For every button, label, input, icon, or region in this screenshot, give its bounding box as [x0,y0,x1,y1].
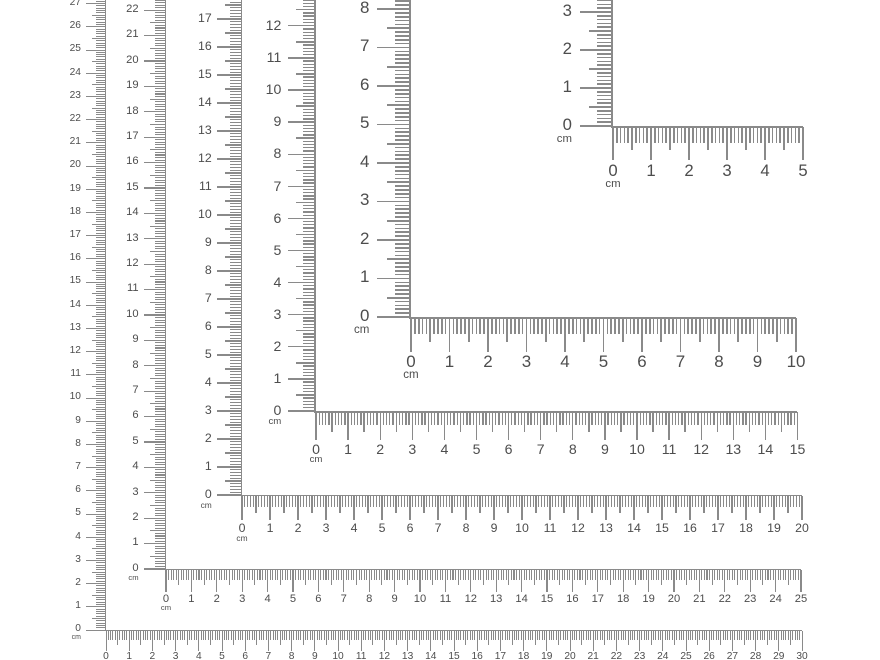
h-tick [662,127,664,143]
v-tick [597,83,613,85]
h-tick [688,127,690,160]
h-tick [620,127,622,143]
h-tick [696,127,698,143]
h-tick [658,127,660,143]
h-tick [612,127,614,160]
h-tick [779,127,781,143]
h-tick [703,127,705,143]
h-tick [624,127,626,143]
v-tick-label: 0 [522,117,572,134]
h-tick [726,127,728,160]
h-tick [692,127,694,143]
h-tick [635,127,637,143]
h-tick [760,127,762,143]
h-tick [627,127,629,143]
v-tick [597,26,613,28]
h-tick [700,127,702,143]
h-tick [677,127,679,143]
h-tick [639,127,641,143]
v-tick [580,87,613,89]
v-tick [597,80,613,82]
h-tick [681,127,683,143]
h-tick [798,127,800,143]
v-tick [597,15,613,17]
v-tick [597,99,613,101]
v-tick [580,11,613,13]
v-tick [597,114,613,116]
v-tick [597,118,613,120]
v-tick-label: 3 [522,3,572,20]
v-tick [597,7,613,9]
h-tick [631,127,633,151]
v-tick [597,42,613,44]
v-tick [580,49,613,51]
h-tick [673,127,675,143]
v-tick-label: 2 [522,41,572,58]
h-tick [787,127,789,143]
ruler-5cm: 0cm1230cm12345 [0,0,880,660]
h-tick [783,127,785,151]
h-tick [654,127,656,143]
h-tick [764,127,766,160]
v-tick-label: 1 [522,79,572,96]
h-tick [730,127,732,143]
v-tick [597,95,613,97]
h-tick [719,127,721,143]
h-tick [772,127,774,143]
h-tick [707,127,709,151]
h-tick [715,127,717,143]
h-tick [791,127,793,143]
h-tick [802,127,804,160]
ruler-set: 0cm1234567891011121314151617181920212223… [0,0,880,660]
v-tick [597,121,613,123]
v-tick [597,0,613,1]
h-tick [646,127,648,143]
v-tick [580,125,613,127]
h-tick [776,127,778,143]
v-tick [589,30,613,32]
h-tick [768,127,770,143]
h-unit-label: cm [588,179,638,190]
h-tick-label: 5 [778,163,828,180]
v-tick [597,38,613,40]
h-tick [753,127,755,143]
h-tick [650,127,652,160]
v-tick [597,61,613,63]
v-tick [589,106,613,108]
v-tick [597,110,613,112]
h-tick [749,127,751,143]
v-unit-label: cm [522,134,572,145]
h-tick [643,127,645,143]
h-tick [616,127,618,143]
v-tick [597,34,613,36]
h-tick [669,127,671,151]
v-tick [597,45,613,47]
h-tick [711,127,713,143]
v-tick [597,23,613,25]
v-tick [589,68,613,70]
v-tick [597,76,613,78]
v-tick [597,91,613,93]
h-tick [757,127,759,143]
v-tick [597,57,613,59]
h-tick [722,127,724,143]
h-tick [745,127,747,151]
h-tick [734,127,736,143]
v-tick [597,53,613,55]
v-tick [597,4,613,6]
v-tick [597,72,613,74]
v-tick [597,19,613,21]
v-tick [597,102,613,104]
h-tick [665,127,667,143]
h-tick [795,127,797,143]
h-tick [738,127,740,143]
h-tick [741,127,743,143]
v-tick [597,64,613,66]
h-tick [684,127,686,143]
